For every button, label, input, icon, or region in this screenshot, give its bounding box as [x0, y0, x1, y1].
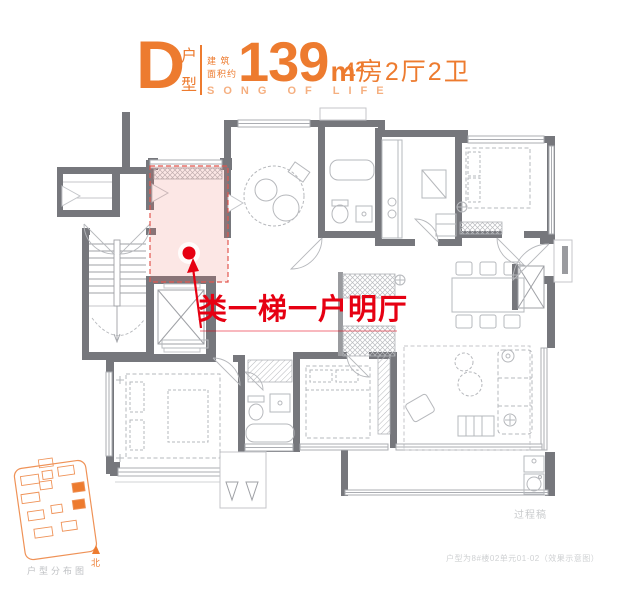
disclaimer-text: 户型为8#楼02单元01·02（效果示意图）: [446, 553, 599, 564]
unit-location-minimap: [13, 454, 98, 561]
highlight-annotation: 类一梯一户明厅: [198, 286, 408, 328]
area-label: 建 筑 面积约: [207, 55, 237, 81]
highlight-dot: [183, 247, 196, 260]
room-configuration: 4房2厅2卫: [342, 52, 471, 88]
header-divider: [200, 45, 202, 95]
slogan-text: SONG OF LIFE: [207, 85, 393, 97]
minimap-caption: 户型分布图: [27, 564, 87, 577]
floorplan-page: D 户型 建 筑 面积约 139m² 4房2厅2卫 SONG OF LIFE 类…: [0, 0, 640, 612]
area-label-line2: 面积约: [207, 68, 237, 81]
area-value: 139: [238, 30, 328, 93]
north-arrow-icon: [92, 545, 100, 554]
unit-type-label: 户型: [178, 47, 194, 105]
watermark-text: 过程稿: [514, 506, 547, 521]
area-label-line1: 建 筑: [207, 55, 237, 68]
stairs: [89, 240, 146, 342]
north-label: 北: [91, 556, 100, 569]
highlight-overlay: [150, 166, 228, 282]
